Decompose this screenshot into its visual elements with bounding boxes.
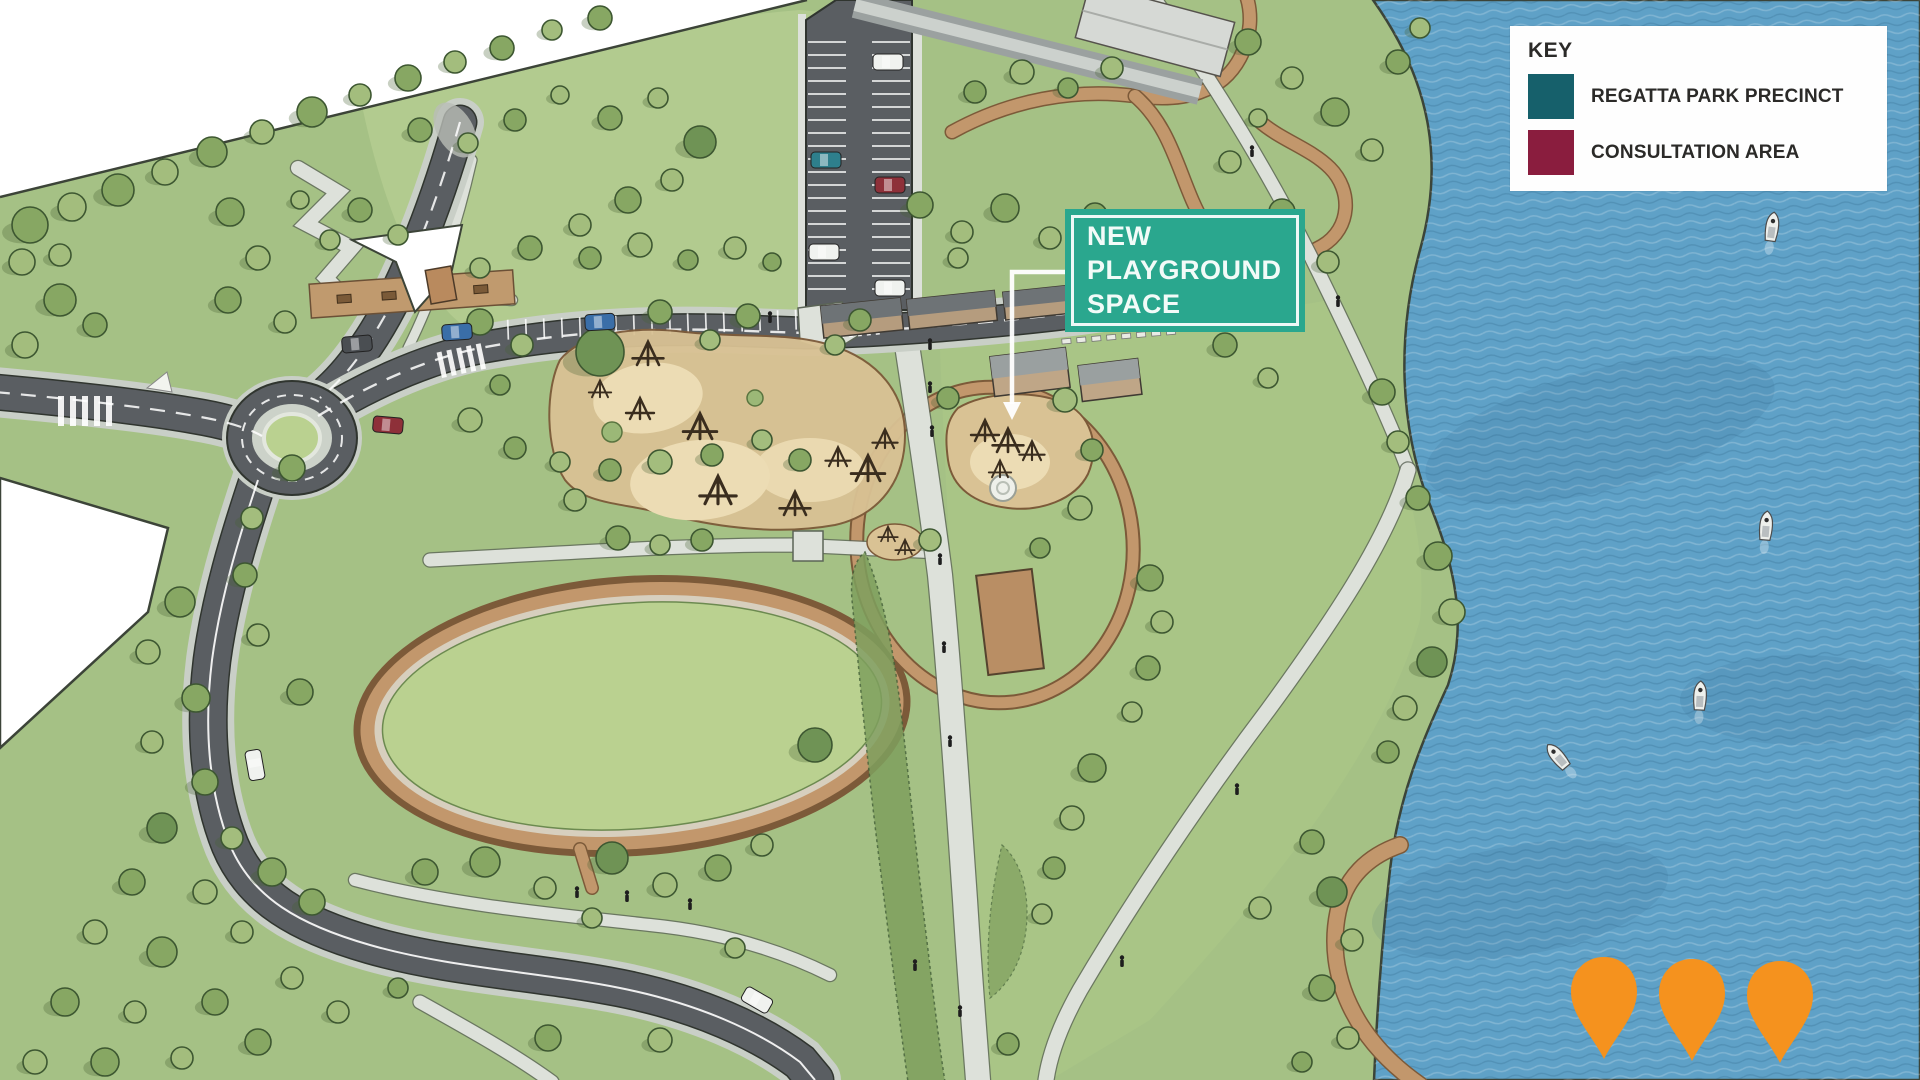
legend-title: KEY [1528, 39, 1873, 63]
map-legend: KEY REGATTA PARK PRECINCT CONSULTATION A… [1510, 26, 1887, 191]
legend-item-consultation-area: CONSULTATION AREA [1528, 130, 1873, 175]
legend-label: REGATTA PARK PRECINCT [1591, 86, 1844, 108]
precinct-swatch-icon [1528, 74, 1574, 119]
legend-label: CONSULTATION AREA [1591, 142, 1800, 164]
park-map-screenshot: KEY REGATTA PARK PRECINCT CONSULTATION A… [0, 0, 1920, 1080]
consultation-swatch-icon [1528, 130, 1574, 175]
legend-item-regatta-park-precinct: REGATTA PARK PRECINCT [1528, 74, 1873, 119]
callout-label: NEW PLAYGROUND SPACE [1087, 219, 1287, 321]
location-pins [1571, 957, 1813, 1063]
new-playground-callout: NEW PLAYGROUND SPACE [1065, 209, 1305, 332]
